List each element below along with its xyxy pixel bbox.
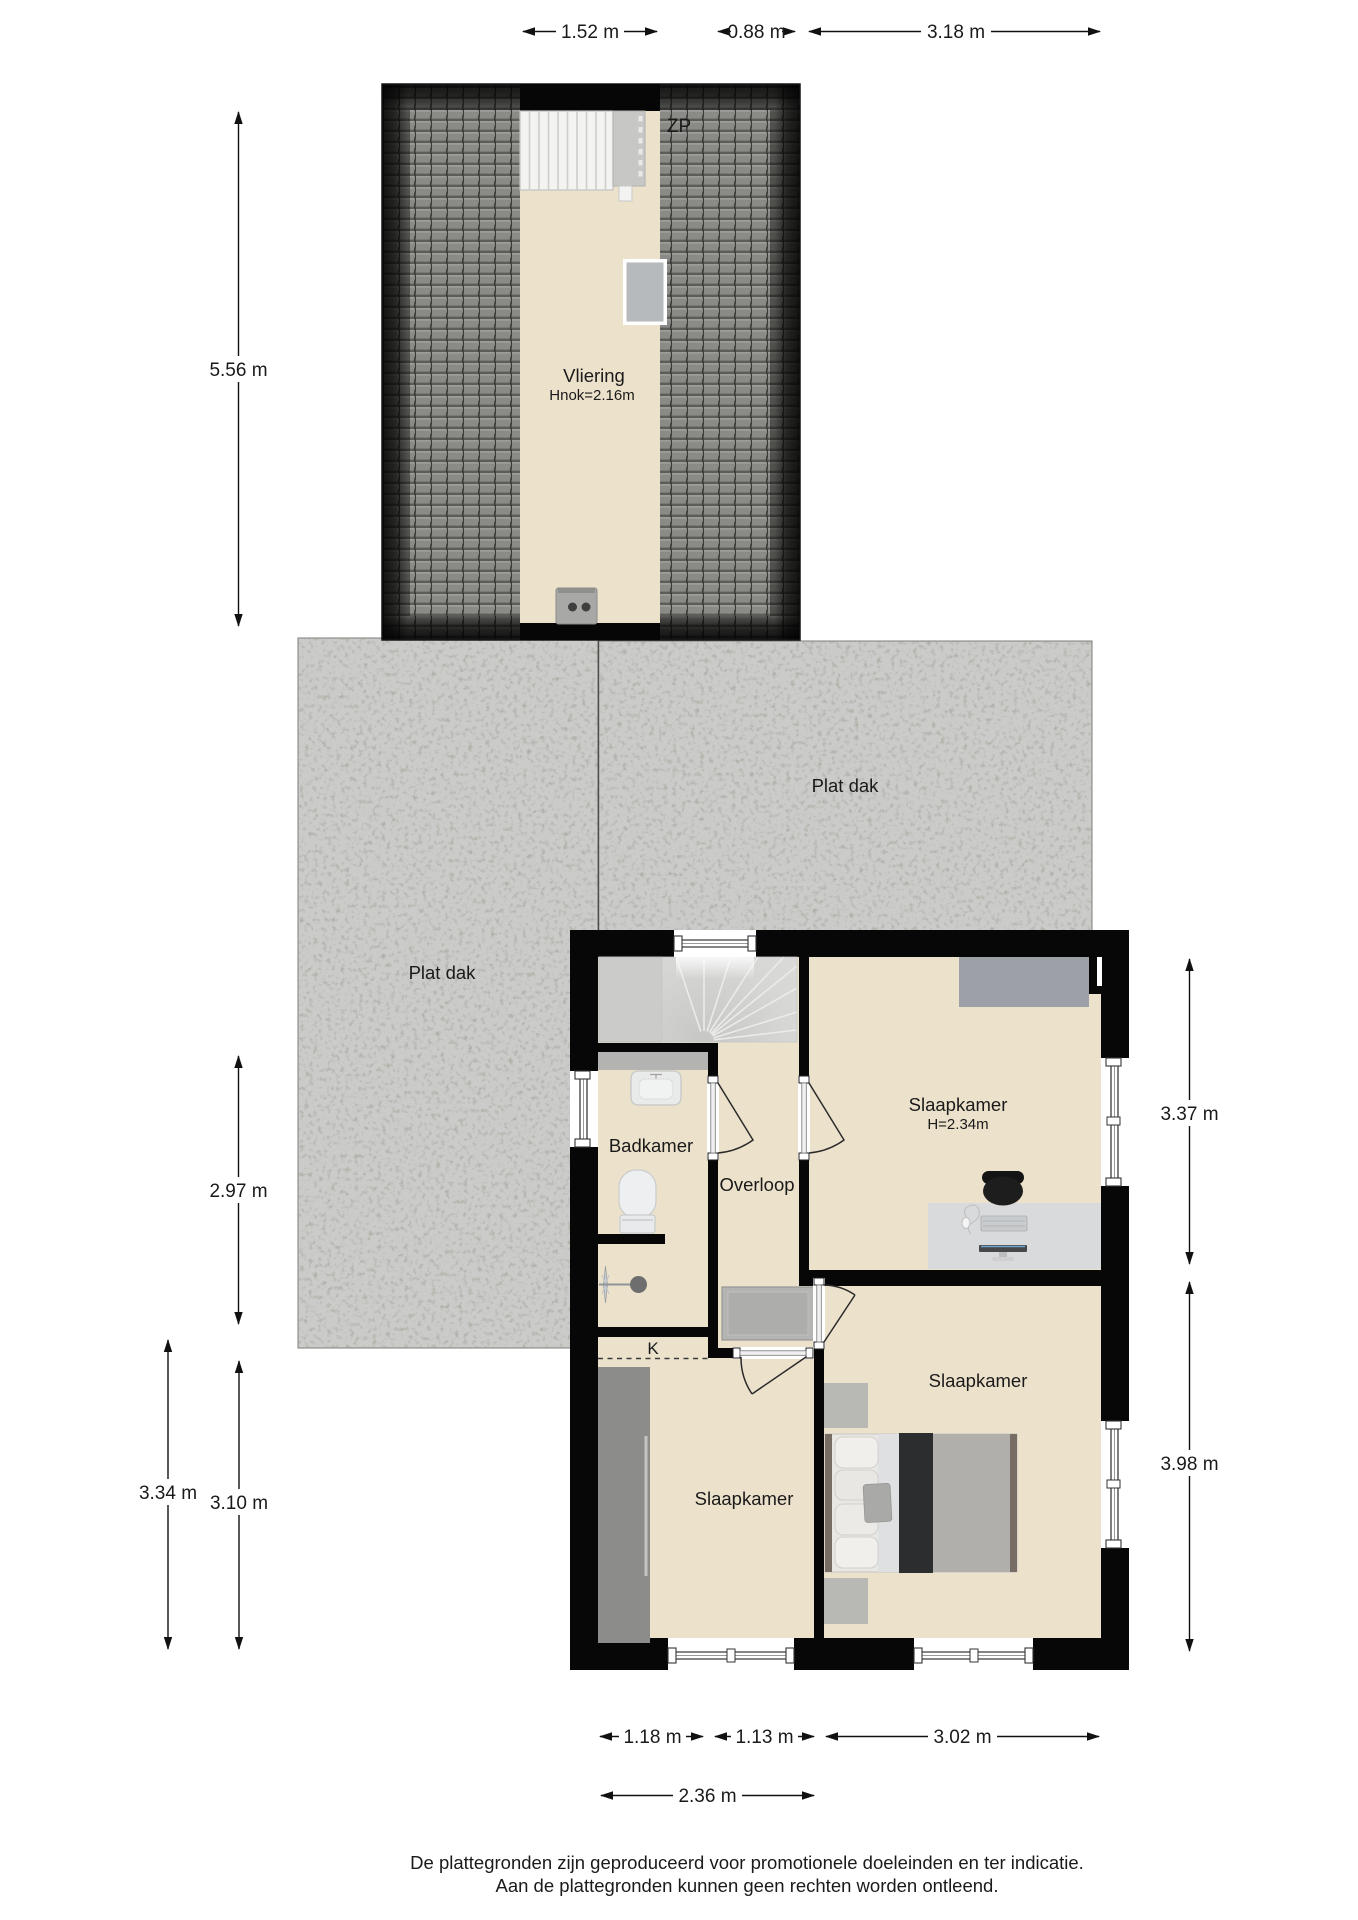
svg-text:Plat dak: Plat dak	[409, 962, 477, 983]
svg-text:2.36 m: 2.36 m	[678, 1786, 736, 1807]
svg-text:Overloop: Overloop	[719, 1174, 794, 1195]
svg-text:H=2.34m: H=2.34m	[927, 1116, 988, 1133]
svg-text:ZP: ZP	[667, 116, 691, 137]
svg-text:Slaapkamer: Slaapkamer	[929, 1370, 1028, 1391]
svg-text:3.10 m: 3.10 m	[210, 1493, 268, 1514]
svg-text:2.97 m: 2.97 m	[209, 1181, 267, 1202]
svg-text:Aan de plattegronden kunnen ge: Aan de plattegronden kunnen geen rechten…	[496, 1875, 999, 1896]
svg-text:3.18 m: 3.18 m	[927, 22, 985, 43]
svg-text:Badkamer: Badkamer	[609, 1135, 693, 1156]
svg-text:1.13 m: 1.13 m	[735, 1727, 793, 1748]
svg-text:De plattegronden zijn geproduc: De plattegronden zijn geproduceerd voor …	[410, 1852, 1084, 1873]
svg-text:1.18 m: 1.18 m	[623, 1727, 681, 1748]
svg-text:K: K	[647, 1339, 659, 1358]
svg-text:Plat dak: Plat dak	[812, 775, 880, 796]
svg-text:Slaapkamer: Slaapkamer	[695, 1488, 794, 1509]
svg-text:3.98 m: 3.98 m	[1160, 1454, 1218, 1475]
svg-text:5.56 m: 5.56 m	[209, 360, 267, 381]
svg-text:1.52 m: 1.52 m	[561, 22, 619, 43]
svg-text:Vliering: Vliering	[563, 365, 625, 386]
svg-text:Slaapkamer: Slaapkamer	[909, 1094, 1008, 1115]
svg-text:Hnok=2.16m: Hnok=2.16m	[549, 387, 634, 404]
svg-text:3.02 m: 3.02 m	[933, 1727, 991, 1748]
svg-text:3.34 m: 3.34 m	[139, 1483, 197, 1504]
svg-text:3.37 m: 3.37 m	[1160, 1104, 1218, 1125]
svg-text:0.88 m: 0.88 m	[727, 22, 785, 43]
